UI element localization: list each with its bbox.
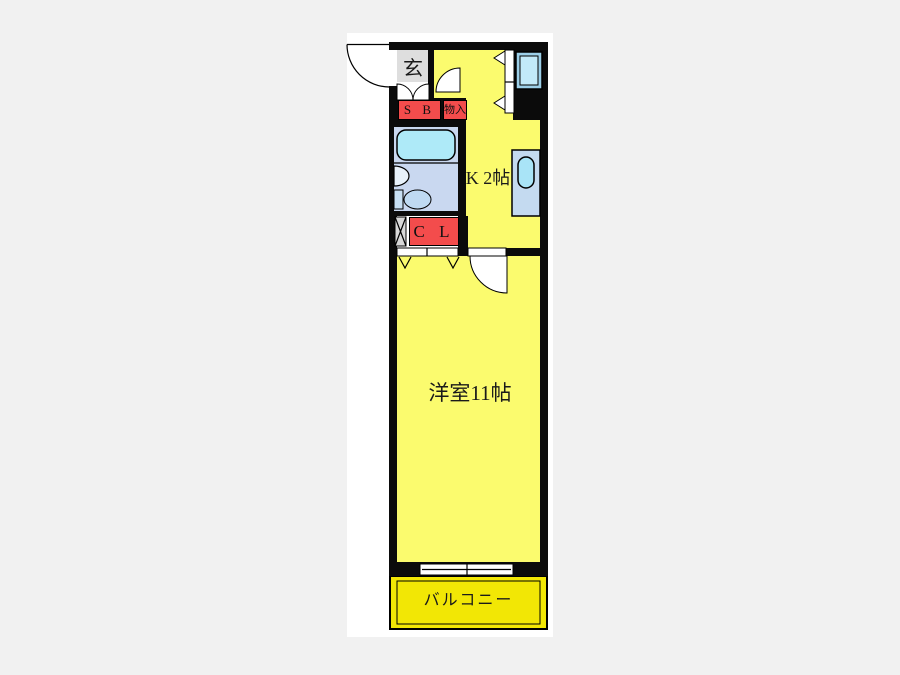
- floorplan-image: [347, 33, 553, 637]
- balcony-label: バルコニー: [392, 590, 545, 612]
- entrance-label: 玄: [397, 55, 429, 83]
- page: 玄 S B 物入 C L K 2帖 洋室11帖 バルコニー: [0, 0, 900, 675]
- closet-label: C L: [409, 217, 459, 246]
- shoebox-label: S B: [398, 100, 441, 120]
- main-room-label: 洋室11帖: [399, 380, 541, 407]
- storage-label: 物入: [443, 100, 467, 120]
- kitchen-label: K 2帖: [460, 166, 516, 190]
